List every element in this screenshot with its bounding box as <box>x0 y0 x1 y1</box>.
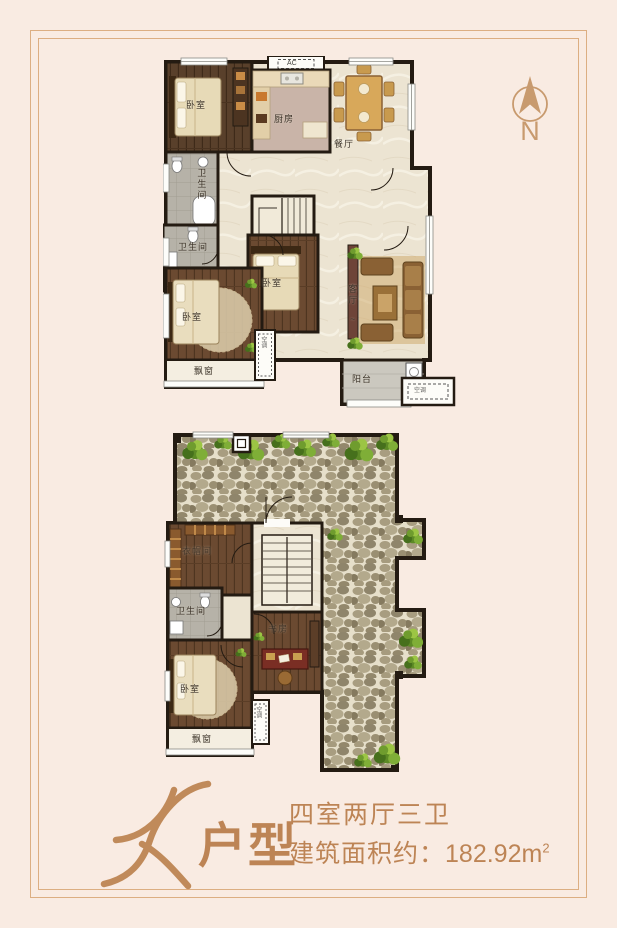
compass-north-label: N <box>500 116 560 147</box>
bathroom1-label: 卫生间 <box>196 168 206 201</box>
ac-bottom-label: 空调 <box>414 388 426 395</box>
bathroom2-label: 卫生间 <box>178 242 208 252</box>
floorplan-page: N <box>0 0 617 928</box>
bathroom3-label: 卫生间 <box>176 606 206 616</box>
living-mark: ~ <box>350 314 356 324</box>
stairs-icon <box>262 535 312 605</box>
bay-window2-label: 飘窗 <box>192 734 212 744</box>
bay-window1-label: 飘窗 <box>194 366 214 376</box>
closet-room <box>168 523 252 595</box>
kitchen-room <box>252 70 330 152</box>
unit-type-label: 户型 <box>198 806 298 876</box>
living-label: 客厅 <box>347 284 357 306</box>
balcony-label: 阳台 <box>352 374 372 384</box>
upper-floor-plan <box>163 56 463 412</box>
bedroom-lower-left <box>166 268 262 360</box>
dining-label: 餐厅 <box>334 139 354 149</box>
bathroom-1 <box>166 152 218 230</box>
study-label: 书房 <box>268 624 288 634</box>
area-sup: 2 <box>542 841 550 856</box>
ac-box-bottom <box>402 378 454 405</box>
bedroom4-label: 卧室 <box>180 684 200 694</box>
bedroom-upper-left <box>166 62 252 152</box>
ac-shaft2-label: 空调 <box>254 706 261 718</box>
lower-floor-plan <box>163 425 463 775</box>
unit-area-label: 建筑面积约：182.92m2 <box>289 834 551 870</box>
kitchen-label: 厨房 <box>274 114 294 124</box>
ac-top-label: AC <box>287 60 297 68</box>
bedroom3-label: 卧室 <box>182 312 202 322</box>
area-prefix: 建筑面积约： <box>289 840 445 868</box>
closet-label: 衣帽间 <box>182 546 212 556</box>
courtyard-square-symbol <box>233 435 250 452</box>
bedroom1-label: 卧室 <box>186 100 206 110</box>
area-value: 182.92m <box>445 840 542 868</box>
unit-spec-label: 四室两厅三卫 <box>289 795 451 831</box>
bedroom2-label: 卧室 <box>262 278 282 288</box>
ac-shaft1-label: 空调 <box>259 336 266 348</box>
footer: 户型 四室两厅三卫 建筑面积约：182.92m2 <box>0 770 617 900</box>
